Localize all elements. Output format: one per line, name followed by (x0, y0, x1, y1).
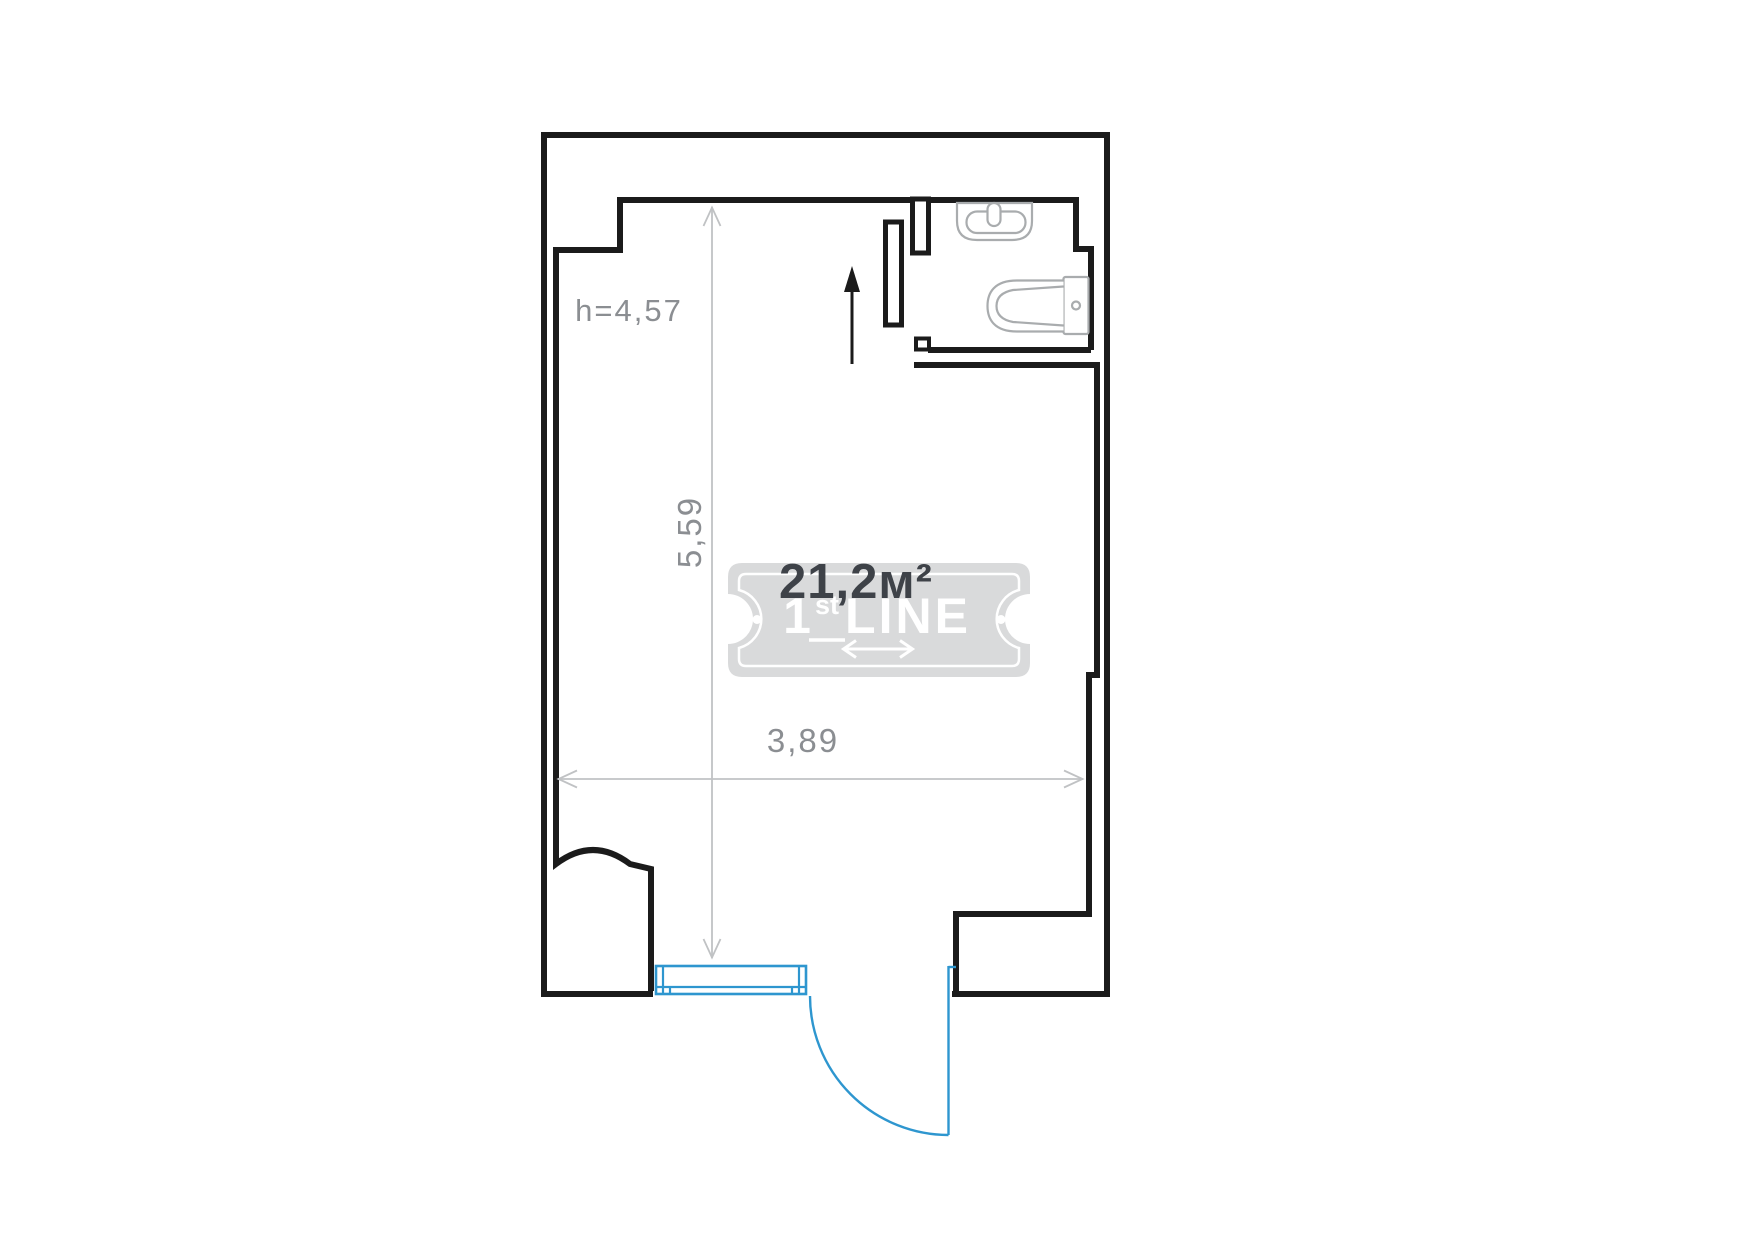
window-icon (656, 966, 806, 994)
floor-plan-drawing: h=4,57 5,59 3,89 1 st LINE 21,2м² (0, 0, 1754, 1240)
watermark-dot-right (997, 615, 1006, 624)
entry-arrow-head (844, 266, 860, 292)
window-frame (656, 966, 806, 994)
horizontal-dimension-label: 3,89 (767, 722, 839, 759)
door-swing-arc (810, 996, 949, 1135)
sink-faucet (988, 203, 1001, 226)
interior-wall-right (914, 365, 1097, 991)
bathroom-door-leaf (886, 222, 902, 325)
horizontal-dimension-line (558, 771, 1083, 788)
bathroom-door-jamb-notch (916, 339, 929, 350)
door-swing-icon (810, 966, 956, 1135)
area-label: 21,2м² (779, 555, 933, 609)
floor-plan: h=4,57 5,59 3,89 1 st LINE 21,2м² (0, 0, 1754, 1240)
vertical-dimension-label: 5,59 (671, 496, 708, 568)
ceiling-height-label: h=4,57 (575, 293, 683, 328)
bathroom-fixtures (957, 203, 1089, 334)
bathroom-partition-stub (913, 199, 929, 253)
toilet-icon (988, 277, 1089, 334)
toilet-flush-button (1072, 302, 1080, 310)
sink-icon (957, 203, 1032, 240)
watermark-dot-left (753, 615, 762, 624)
entry-arrow-icon (844, 266, 860, 364)
vertical-dimension-line (704, 207, 721, 958)
